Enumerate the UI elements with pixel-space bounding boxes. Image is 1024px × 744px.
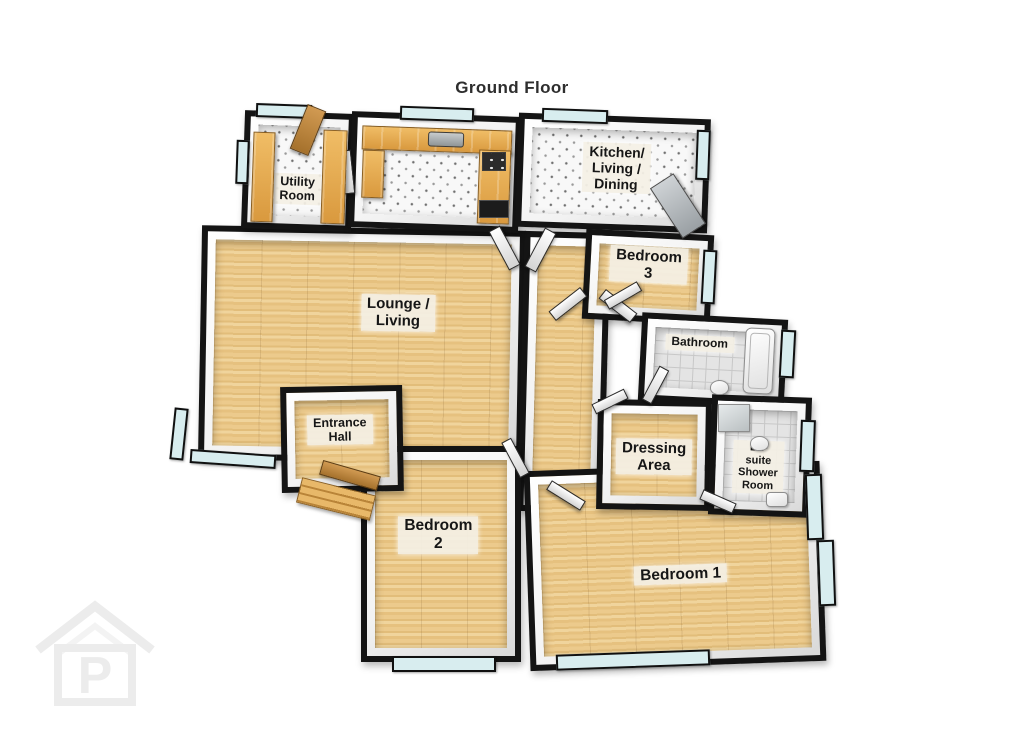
toilet-ensuite — [750, 436, 769, 451]
window-lounge-left — [169, 407, 188, 460]
kitchen-oven — [479, 200, 509, 218]
room-label-lounge-living: Lounge / Living — [361, 294, 436, 332]
room-label-dressing-area: Dressing Area — [616, 438, 693, 476]
watermark-letter: P — [78, 647, 113, 705]
window-utility-left — [235, 140, 250, 184]
window-bedroom-2-bottom — [392, 656, 496, 672]
window-ensuite-right — [799, 420, 816, 472]
room-label-bathroom: Bathroom — [665, 334, 734, 353]
wash-basin-ensuite — [766, 492, 788, 507]
window-bedroom-1-right-upper — [805, 474, 824, 541]
toilet-bathroom — [710, 380, 729, 395]
utility-counter-right — [320, 130, 347, 225]
room-label-entrance-hall: Entrance Hall — [307, 414, 373, 446]
window-bedroom-3-right — [701, 250, 718, 305]
window-bedroom-1-right-lower — [817, 540, 836, 607]
window-dining-top — [542, 108, 608, 124]
room-label-utility: Utility Room — [273, 173, 321, 205]
kitchen-hob — [482, 152, 506, 171]
window-kitchen-top — [400, 106, 474, 123]
bathtub — [742, 327, 775, 394]
bathtub-basin — [748, 333, 771, 390]
house-logo-watermark: P — [30, 592, 160, 707]
room-label-bedroom-2: Bedroom 2 — [398, 516, 478, 554]
room-bedroom-3: Bedroom 3 — [582, 229, 715, 326]
dressing-floor: Dressing Area — [610, 413, 697, 496]
shower-tray — [718, 404, 750, 432]
room-label-bedroom-3: Bedroom 3 — [609, 244, 689, 285]
kitchen-sink — [428, 131, 465, 147]
room-label-bedroom-1: Bedroom 1 — [634, 563, 728, 586]
utility-counter-left — [250, 132, 275, 223]
window-dining-right — [695, 130, 711, 180]
window-bathroom-right — [779, 330, 796, 379]
page-title: Ground Floor — [0, 78, 1024, 98]
kitchen-counter-left — [361, 150, 385, 199]
room-dressing-area: Dressing Area — [596, 399, 712, 511]
floor-plan-page: Ground Floor Lounge / Living Bedroom 2 B… — [0, 0, 1024, 744]
room-label-kitchen-living-dining: Kitchen/ Living / Dining — [582, 142, 651, 195]
